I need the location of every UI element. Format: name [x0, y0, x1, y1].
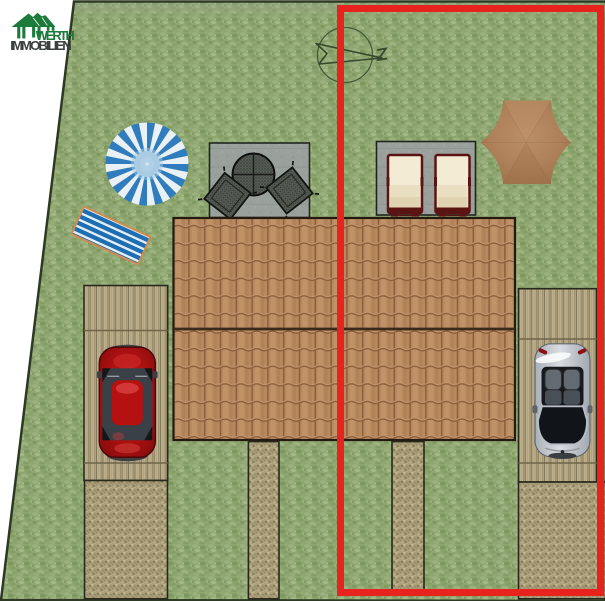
svg-text:IMMOBILIEN: IMMOBILIEN — [10, 38, 72, 53]
